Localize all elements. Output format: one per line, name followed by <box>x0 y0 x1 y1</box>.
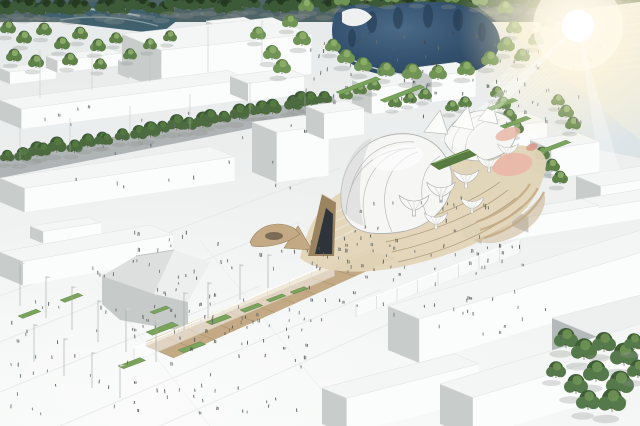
architectural-rendering <box>0 0 640 426</box>
render-canvas <box>0 0 640 426</box>
